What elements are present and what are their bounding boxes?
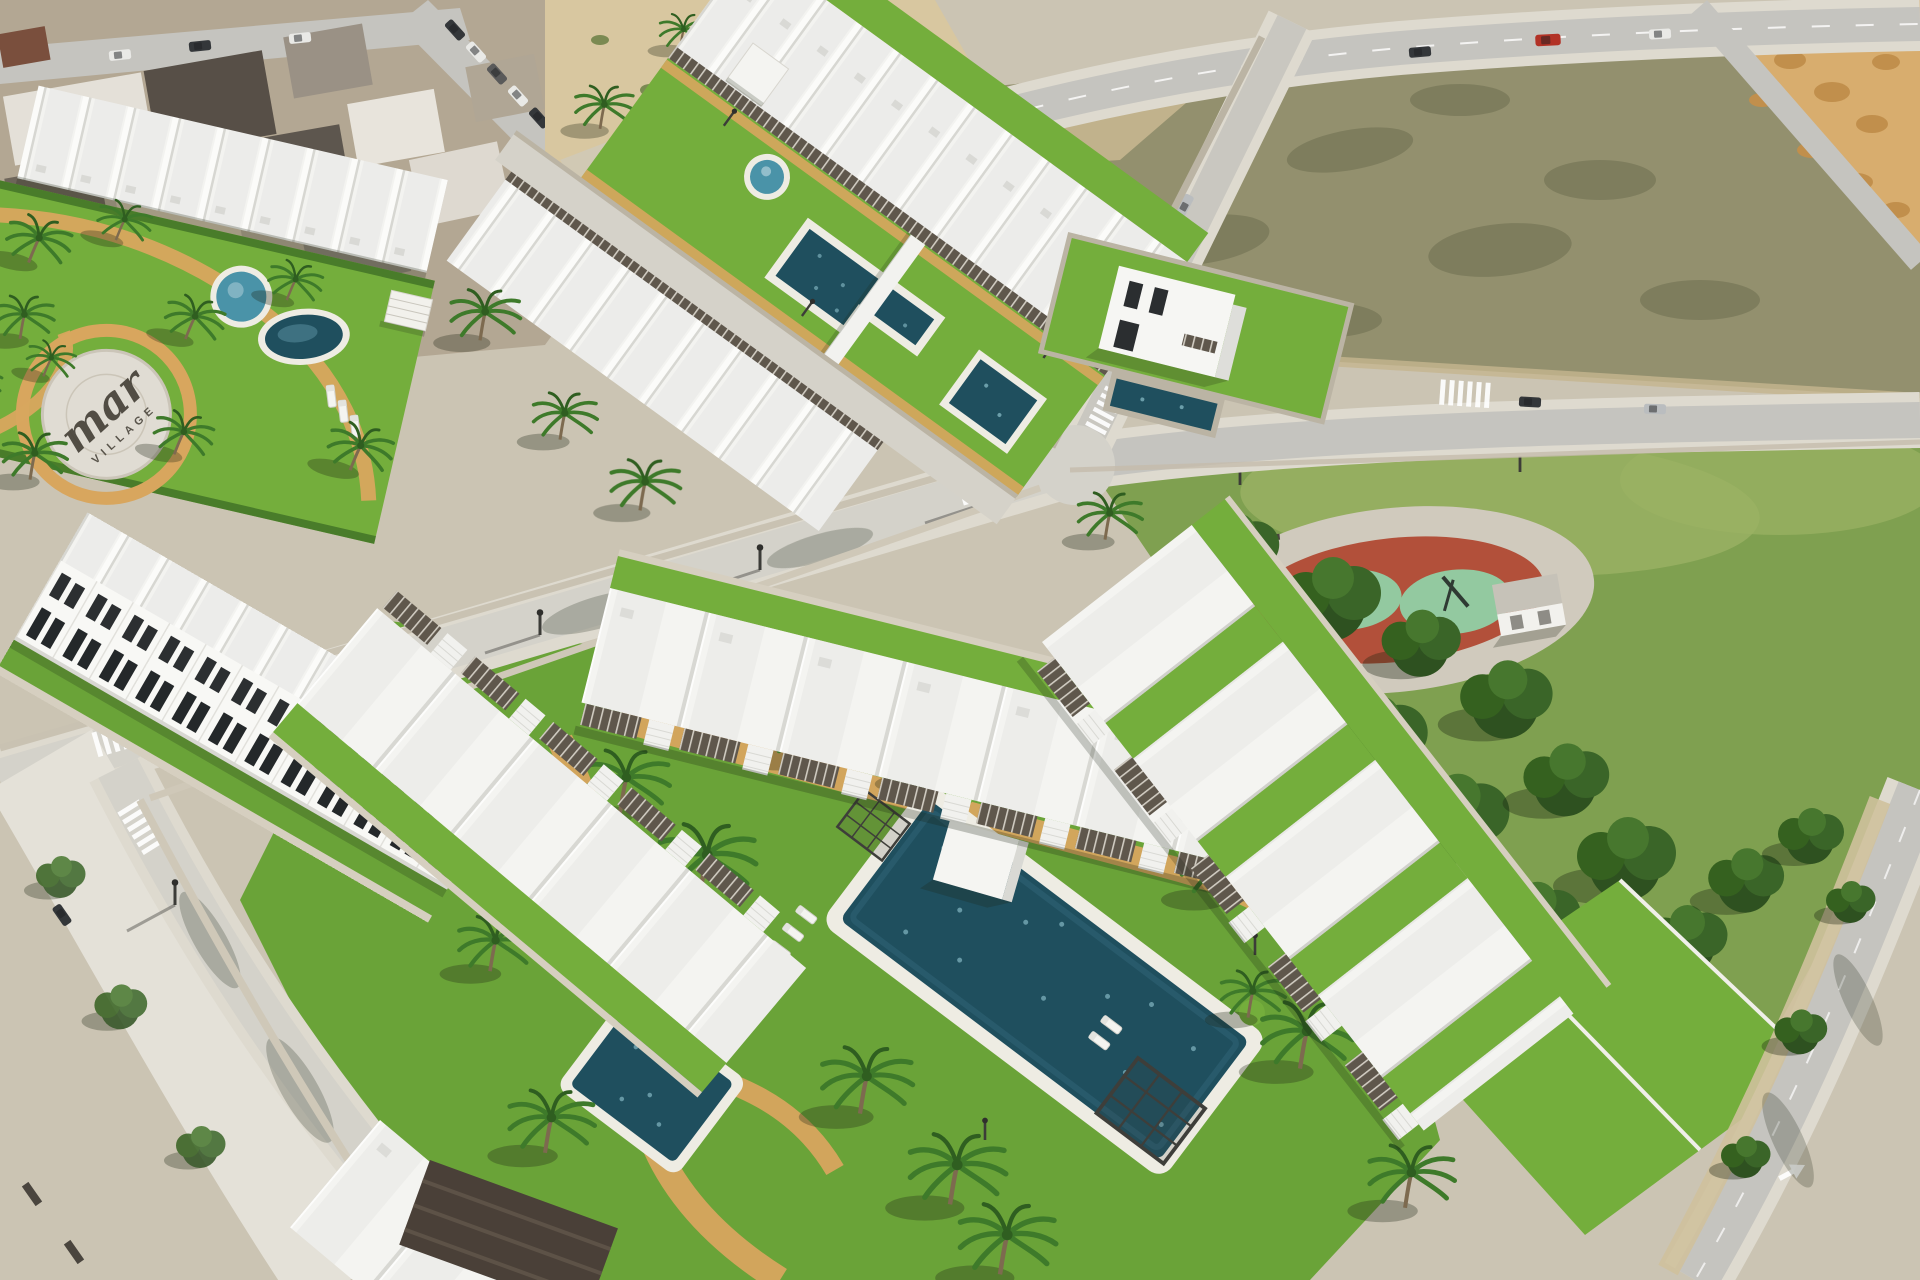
aerial-render: mar VILLAGE xyxy=(0,0,1920,1280)
